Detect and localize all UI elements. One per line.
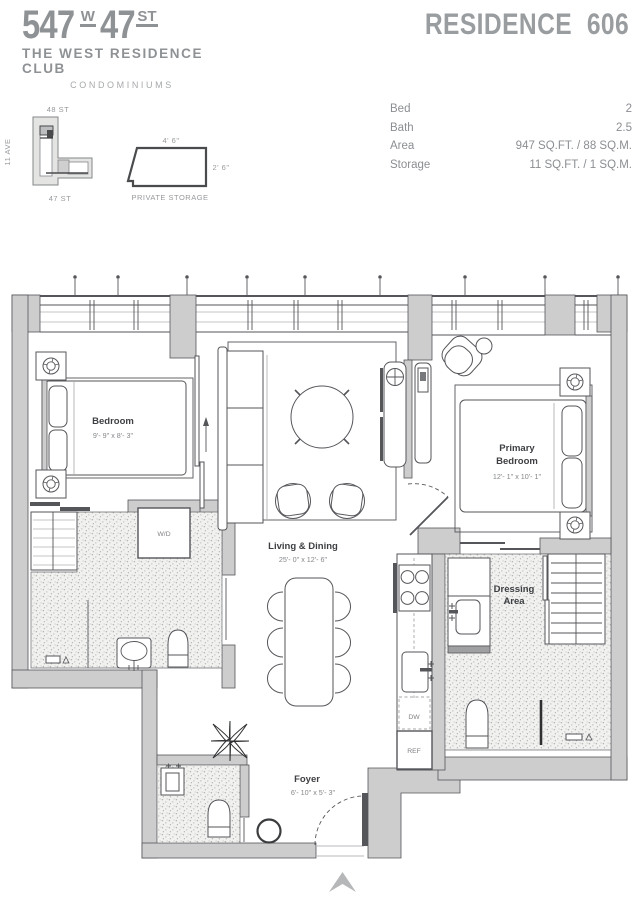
key-map-street-top: 48 ST (47, 105, 70, 114)
door-swing (408, 484, 448, 497)
key-map: 48 ST 47 ST 11 AVE (3, 105, 92, 203)
sliding-door (200, 462, 204, 508)
washer-dryer-label: W/D (157, 531, 170, 538)
primary-bedroom-label2: Bedroom (496, 456, 538, 467)
primary-bedroom: Primary Bedroom 12'- 1" x 10'- 1" (437, 332, 592, 539)
coffee-table (291, 386, 353, 448)
living-dining-dims: 25'- 0" x 12'- 6" (279, 555, 328, 564)
chair (335, 628, 351, 657)
dressing-area-label: Dressing (494, 584, 535, 595)
living-dining-label: Living & Dining (268, 541, 338, 552)
chair (267, 628, 283, 657)
vanity (448, 558, 490, 653)
shower-drain (566, 734, 582, 740)
chair (267, 664, 283, 693)
armchair (330, 483, 365, 518)
stool (258, 820, 281, 843)
floorplan-sheet: 547 W 47 ST THE WEST RESIDENCE CLUB COND… (0, 0, 639, 897)
direction-arrow-icon (203, 417, 209, 426)
storage-depth-label: 2' 6" (212, 163, 229, 172)
chair (335, 592, 351, 621)
door-swing (315, 796, 364, 845)
column (408, 295, 432, 360)
survey-ticks (74, 276, 620, 295)
storage-caption: PRIVATE STORAGE (131, 193, 208, 202)
main-bathroom: W/D (30, 502, 226, 671)
key-map-street-bottom: 47 ST (49, 194, 72, 203)
dressing-area-label2: Area (503, 596, 525, 607)
storage-width-label: 4' 6" (162, 136, 179, 145)
dining-table (267, 578, 350, 706)
toilet (466, 700, 488, 748)
north-arrow-icon (329, 872, 356, 892)
pillow (49, 386, 67, 427)
bench (448, 646, 490, 653)
primary-hallway (408, 363, 448, 535)
vanity-sink (456, 600, 480, 634)
lamp-icon (567, 374, 583, 390)
powder-room (157, 764, 244, 844)
sliding-door (545, 600, 549, 644)
foyer-dims: 6'- 10" x 5'- 3" (291, 788, 336, 797)
pocket-door (60, 507, 90, 511)
bedroom-label: Bedroom (92, 416, 134, 427)
plant-icon (211, 721, 249, 761)
key-map-avenue: 11 AVE (3, 139, 12, 166)
lamp-icon (567, 517, 583, 533)
column (170, 295, 196, 358)
bedroom: Bedroom 9'- 9" x 8'- 3" (36, 352, 209, 508)
shower-drain (46, 656, 60, 663)
pocket-door (30, 502, 60, 506)
storage-diagram: 4' 6" 2' 6" PRIVATE STORAGE (128, 136, 230, 202)
sliding-door (543, 556, 547, 600)
dishwasher-label: DW (408, 714, 420, 721)
sofa (218, 347, 267, 530)
door-leaf (362, 793, 368, 846)
dressing-bath: Dressing Area (445, 554, 611, 750)
bedroom-dims: 9'- 9" x 8'- 3" (93, 431, 134, 440)
floor-plan: 48 ST 47 ST 11 AVE 4' 6" 2' 6" PRIVATE S… (0, 0, 639, 897)
side-table (476, 338, 492, 354)
entry-door (315, 793, 368, 856)
toilet (208, 800, 230, 837)
refrigerator-label: REF (407, 748, 421, 755)
foyer-label: Foyer (294, 774, 320, 785)
sliding-door (195, 356, 199, 466)
pillow (49, 430, 67, 471)
dressing-closet (543, 554, 605, 644)
closet (31, 512, 77, 570)
primary-bedroom-label: Primary (499, 443, 535, 454)
chair (335, 664, 351, 693)
foyer: Foyer 6'- 10" x 5'- 3" (157, 721, 368, 856)
cooktop (399, 565, 430, 611)
pillow (562, 406, 582, 456)
tv-console (380, 362, 406, 467)
window-wall (12, 295, 627, 360)
primary-bedroom-dims: 12'- 1" x 10'- 1" (493, 472, 542, 481)
lamp-icon (43, 358, 59, 374)
living-dining: Living & Dining 25'- 0" x 12'- 6" (218, 342, 406, 706)
pillow (562, 458, 582, 508)
armchair (276, 483, 311, 518)
lamp-icon (43, 476, 59, 492)
chair (267, 592, 283, 621)
toilet (168, 630, 188, 667)
